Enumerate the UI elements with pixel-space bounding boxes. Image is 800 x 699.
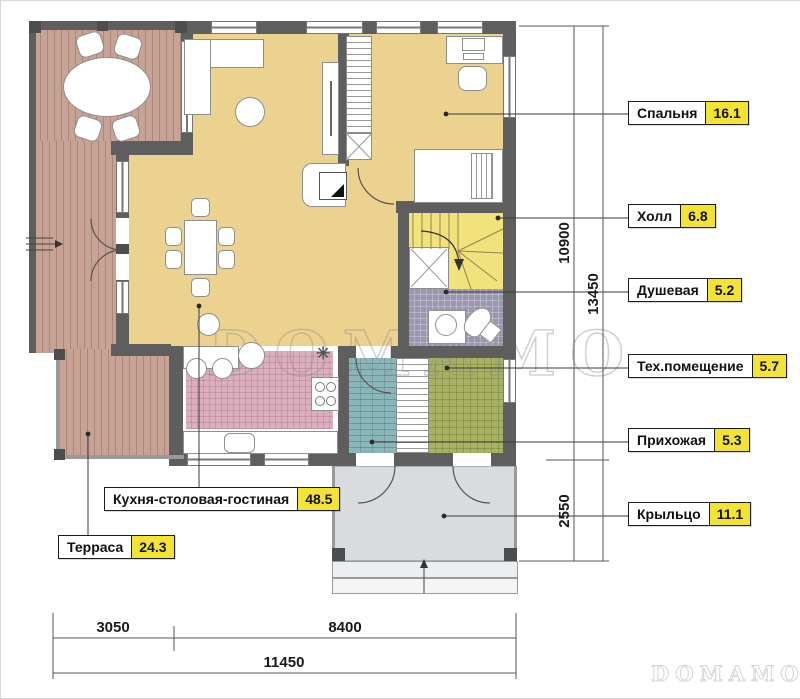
wall-kitchen-entry [338,346,349,466]
wall-kitchen-left [169,346,183,466]
room-area: 5.2 [707,279,741,301]
room-area: 5.7 [752,355,786,377]
kitchen-sink [224,433,255,453]
label-tech: Тех.помещение5.7 [628,354,787,378]
cooktop-burner [326,396,336,406]
bathroom-sink [435,314,457,336]
bedroom-wardrobe [346,133,372,160]
terrace-rail-left [56,349,60,459]
dining-chair [165,250,182,269]
room-name: Крыльцо [629,503,709,525]
room-name: Спальня [629,102,705,124]
coffee-table [235,97,265,127]
wall-bottom-b [394,453,453,466]
dim-10900: 10900 [556,222,573,264]
shower-cabin [409,247,449,289]
fireplace-symbol [331,184,344,197]
plant-pot [197,313,220,336]
label-terrace: Терраса24.3 [58,535,175,559]
wall-kitchen-stub [111,344,171,356]
dim-3050: 3050 [96,619,129,636]
cooktop-burner [315,396,325,406]
dining-table [184,220,217,275]
dining-chair [218,250,235,269]
dim-ext-bottom [53,613,516,679]
terrace-floor-bottom [60,349,184,459]
cooktop-burner [315,382,325,392]
dim-ext-right [519,26,609,561]
dim-2550: 2550 [556,494,573,527]
tv-cabinet [322,62,339,155]
window-top-1 [211,21,257,34]
room-name: Душевая [629,279,707,301]
corner-sofa-vertical [184,39,211,115]
kitchen-round-table [238,342,265,369]
room-area: 48.5 [297,488,339,510]
terrace-post-nw [29,21,41,33]
label-kitchen: Кухня-столовая-гостиная48.5 [104,487,340,511]
room-name: Холл [629,205,680,227]
label-porch: Крыльцо11.1 [628,502,751,526]
bar-stool [212,358,233,379]
monitor [462,38,485,51]
porch-floor [332,466,517,561]
wall-shower-bottom-b [391,346,516,358]
terrace-post-ne [175,21,187,33]
cooktop-burner [326,382,336,392]
terrace-post-sw2 [54,449,65,460]
terrace-post-sw1 [54,349,65,360]
window-right-tech [503,359,516,403]
window-top-3 [376,21,421,34]
fridge-symbol: ✳ [316,344,330,364]
window-right-bedroom [503,56,516,118]
keyboard [463,53,484,60]
porch-rail-left [332,466,335,561]
wall-terrace-corner [111,141,193,155]
room-area: 5.3 [714,429,748,451]
label-entry: Прихожая5.3 [628,428,750,452]
terrace-table [63,57,151,117]
terrace-edge-left [29,21,36,353]
window-bottom-2 [264,453,309,466]
window-left-1 [116,161,129,213]
fireplace-firebox [319,172,347,200]
dim-11450: 11450 [264,654,305,671]
fireplace [302,163,346,207]
room-area: 24.3 [131,536,173,558]
label-bedroom: Спальня16.1 [628,101,749,125]
porch-post-right [504,548,517,561]
bed-headboard [471,153,493,199]
porch-step-2 [332,578,518,594]
bar-stool [186,358,207,379]
tv [330,81,332,136]
terrace-post-n [97,21,108,31]
porch-rail-right [514,466,517,561]
dining-chair [165,227,182,246]
window-top-4 [437,21,483,34]
french-door-mullion [116,244,129,254]
room-name: Тех.помещение [629,355,752,377]
desk-chair [458,66,487,91]
room-area: 11.1 [709,503,750,525]
dim-8400: 8400 [328,619,361,636]
porch-step-1 [332,561,518,578]
room-area: 6.8 [680,205,714,227]
dim-lines-right [574,26,603,561]
room-name: Терраса [59,536,131,558]
terrace-rail-bottom [56,455,184,459]
dining-chair [191,278,210,297]
wall-shower-bottom-a [338,346,356,358]
kitchen-counter-bottom [183,431,338,454]
room-area: 16.1 [705,102,747,124]
room-name: Кухня-столовая-гостиная [105,488,297,510]
dining-chair [191,198,210,217]
wall-bottom-c [491,453,516,466]
dining-chair [218,227,235,246]
dim-13450: 13450 [585,273,602,315]
watermark-corner: DOMAMO [651,661,800,686]
label-shower: Душевая5.2 [628,278,742,302]
wall-hall-left [398,213,409,358]
window-top-2 [306,21,363,34]
window-bottom-1 [187,453,251,466]
terrace-floor-left [29,141,116,353]
dim-lines-bottom [53,638,516,673]
label-hall: Холл6.8 [628,204,716,228]
window-left-2 [116,281,129,314]
bedroom-closet [346,36,372,133]
floor-plan-canvas: DOMAMO [0,0,800,699]
porch-post-left [332,548,345,561]
kitchen-counter-right [311,377,339,411]
room-name: Прихожая [629,429,714,451]
